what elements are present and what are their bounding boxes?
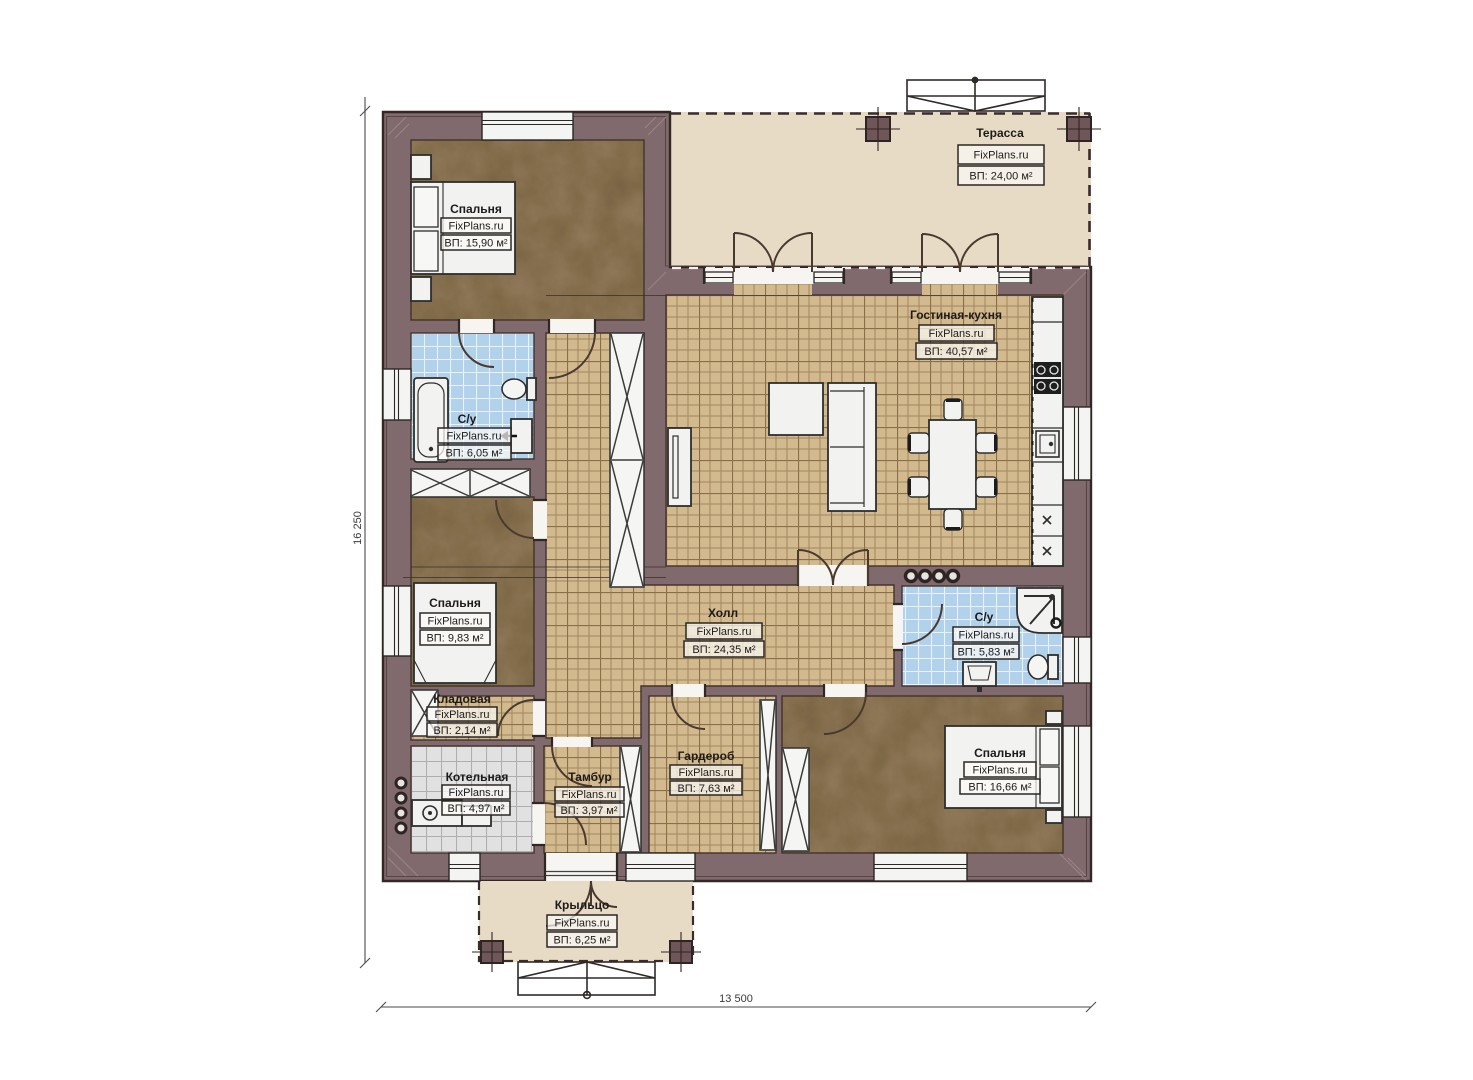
svg-text:Спальня: Спальня [974,746,1026,760]
svg-text:FixPlans.ru: FixPlans.ru [678,767,733,779]
svg-text:ВП: 6,05 м²: ВП: 6,05 м² [445,448,502,460]
svg-text:FixPlans.ru: FixPlans.ru [446,431,501,443]
svg-text:16 250: 16 250 [352,511,364,545]
svg-text:Гостиная-кухня: Гостиная-кухня [910,308,1002,322]
svg-text:FixPlans.ru: FixPlans.ru [434,709,489,721]
svg-text:FixPlans.ru: FixPlans.ru [427,616,482,628]
svg-text:С/у: С/у [975,610,994,624]
svg-text:ВП: 40,57 м²: ВП: 40,57 м² [924,346,988,358]
svg-text:ВП: 3,97 м²: ВП: 3,97 м² [560,805,617,817]
svg-text:FixPlans.ru: FixPlans.ru [928,328,983,340]
svg-text:Спальня: Спальня [429,596,481,610]
svg-text:FixPlans.ru: FixPlans.ru [561,789,616,801]
svg-text:Холл: Холл [708,606,738,620]
svg-text:FixPlans.ru: FixPlans.ru [972,765,1027,777]
svg-text:FixPlans.ru: FixPlans.ru [958,630,1013,642]
svg-text:FixPlans.ru: FixPlans.ru [696,626,751,638]
svg-text:ВП: 24,35 м²: ВП: 24,35 м² [692,644,756,656]
svg-text:13 500: 13 500 [719,993,753,1005]
svg-text:С/у: С/у [458,412,477,426]
svg-text:ВП: 5,83 м²: ВП: 5,83 м² [957,647,1014,659]
svg-text:ВП: 24,00 м²: ВП: 24,00 м² [969,171,1033,183]
svg-text:FixPlans.ru: FixPlans.ru [448,787,503,799]
svg-text:FixPlans.ru: FixPlans.ru [554,918,609,930]
svg-text:Крыльцо: Крыльцо [555,898,610,912]
svg-text:Терасса: Терасса [976,126,1024,140]
svg-text:ВП: 9,83 м²: ВП: 9,83 м² [426,633,483,645]
svg-text:ВП: 15,90 м²: ВП: 15,90 м² [444,238,508,250]
svg-text:Спальня: Спальня [450,202,502,216]
svg-text:ВП: 4,97 м²: ВП: 4,97 м² [447,803,504,815]
svg-text:ВП: 7,63 м²: ВП: 7,63 м² [677,783,734,795]
svg-text:Гардероб: Гардероб [678,749,735,763]
svg-text:ВП: 6,25 м²: ВП: 6,25 м² [553,935,610,947]
svg-text:Котельная: Котельная [446,770,509,784]
svg-text:Тамбур: Тамбур [568,770,612,784]
svg-text:FixPlans.ru: FixPlans.ru [448,221,503,233]
svg-text:ВП: 16,66 м²: ВП: 16,66 м² [968,782,1032,794]
svg-text:ВП: 2,14 м²: ВП: 2,14 м² [433,725,490,737]
svg-text:Кладовая: Кладовая [433,692,490,706]
svg-text:FixPlans.ru: FixPlans.ru [973,150,1028,162]
